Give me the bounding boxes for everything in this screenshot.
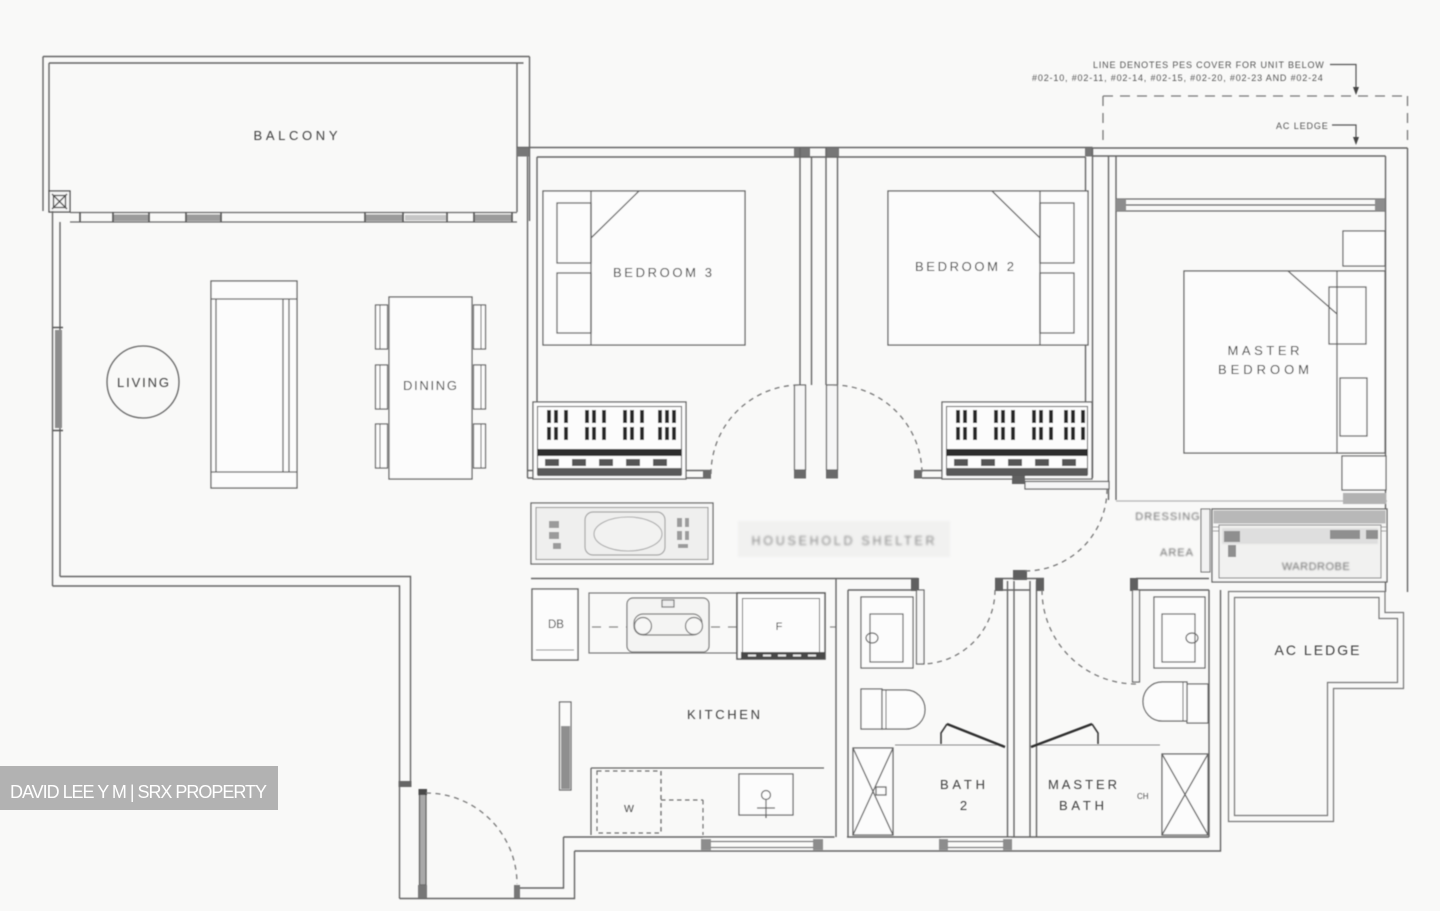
svg-text:W: W [624, 803, 634, 815]
svg-text:AC LEDGE: AC LEDGE [1275, 642, 1360, 658]
svg-text:#02-10, #02-11, #02-14, #02-15: #02-10, #02-11, #02-14, #02-15, #02-20, … [1032, 73, 1323, 83]
svg-text:BATH: BATH [1059, 798, 1105, 813]
svg-text:BALCONY: BALCONY [254, 128, 339, 143]
svg-text:F: F [776, 621, 783, 633]
svg-text:AREA: AREA [1160, 547, 1194, 559]
svg-text:BEDROOM 2: BEDROOM 2 [915, 259, 1015, 274]
svg-text:DAVID LEE Y M | SRX PROPERTY: DAVID LEE Y M | SRX PROPERTY [10, 782, 267, 802]
svg-text:DB: DB [548, 619, 564, 631]
svg-text:KITCHEN: KITCHEN [687, 707, 761, 722]
svg-text:CH: CH [1137, 792, 1149, 801]
svg-text:LINE DENOTES PES COVER FOR UNI: LINE DENOTES PES COVER FOR UNIT BELOW [1093, 60, 1324, 70]
svg-text:HOUSEHOLD SHELTER: HOUSEHOLD SHELTER [752, 534, 935, 548]
svg-text:BEDROOM 3: BEDROOM 3 [613, 265, 713, 280]
svg-text:AC LEDGE: AC LEDGE [1276, 121, 1328, 131]
svg-text:MASTER: MASTER [1048, 777, 1118, 792]
svg-text:2: 2 [960, 798, 968, 813]
svg-text:BATH: BATH [940, 777, 986, 792]
svg-text:DRESSING: DRESSING [1135, 511, 1200, 523]
svg-text:WARDROBE: WARDROBE [1282, 561, 1350, 573]
svg-text:DINING: DINING [403, 378, 457, 393]
